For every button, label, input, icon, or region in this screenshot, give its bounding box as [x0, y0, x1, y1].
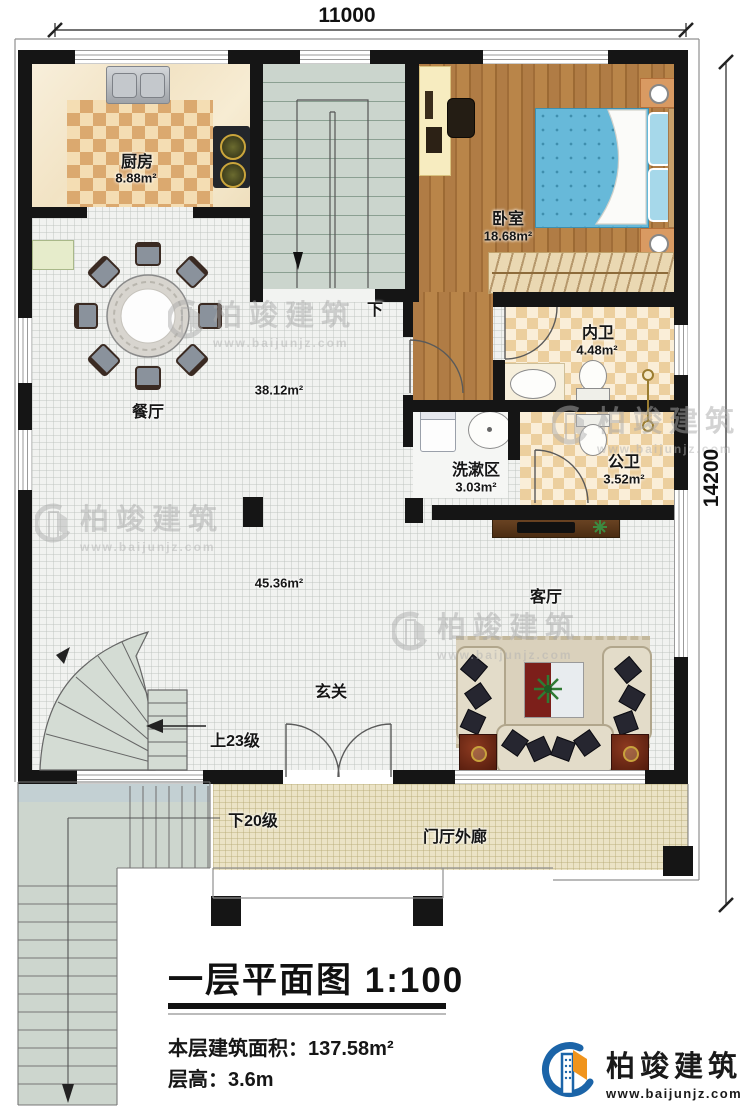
- end-table-lamp: [471, 746, 487, 762]
- desk-chair: [447, 98, 475, 138]
- window: [455, 770, 645, 784]
- title-rule-thin: [168, 1013, 446, 1015]
- sink-basin: [140, 73, 165, 98]
- wall-corridor: [493, 292, 505, 307]
- burner: [220, 134, 246, 160]
- dining-area: 38.12m²: [255, 383, 303, 398]
- wall-segment: [203, 770, 283, 784]
- up-steps-label: 上23级: [210, 727, 260, 751]
- washer-panel: [421, 411, 455, 420]
- brand-name: 柏竣建筑: [606, 1051, 742, 1083]
- floor-area-value: 137.58m²: [308, 1038, 394, 1060]
- wall-living-top: [432, 505, 674, 520]
- wall-segment: [674, 64, 688, 325]
- washing-machine: [420, 410, 456, 452]
- desk-speaker: [425, 91, 433, 119]
- floor-area-row: 本层建筑面积：137.58m²: [168, 1032, 394, 1061]
- wall-kitchen-right: [250, 64, 263, 302]
- end-table: [611, 734, 649, 772]
- wall-corridor-left: [403, 302, 413, 337]
- wall-segment: [18, 770, 77, 784]
- corridor-floor: [413, 292, 493, 400]
- window: [674, 325, 688, 375]
- inner-bath-area: 4.48m²: [576, 343, 617, 358]
- inner-bath-toilet: [576, 360, 608, 400]
- kitchen-label: 厨房: [121, 148, 153, 172]
- wall-segment: [228, 50, 300, 64]
- wall-segment: [18, 64, 32, 318]
- window: [483, 50, 608, 64]
- wall-segment: [393, 770, 455, 784]
- public-bath-label: 公卫: [608, 448, 640, 472]
- stair-down-label: 下: [367, 296, 383, 320]
- down-steps-label: 下20级: [228, 807, 278, 831]
- floor-area-label: 本层建筑面积：: [168, 1038, 308, 1060]
- wall-pier: [405, 498, 423, 523]
- dining-label: 餐厅: [132, 398, 164, 422]
- wardrobe-rail: [492, 272, 668, 274]
- wall-bedroom-bottom: [505, 292, 674, 307]
- wall-kitchen-bottom: [18, 207, 87, 218]
- wash-area-area: 3.03m²: [455, 480, 496, 495]
- wall-segment: [18, 383, 32, 430]
- window: [18, 318, 32, 383]
- column: [243, 497, 263, 527]
- wash-basin: [468, 411, 512, 449]
- dimension-top: 11000: [318, 4, 375, 28]
- wall-corridor: [493, 360, 505, 402]
- wall-bath-middle: [413, 400, 674, 412]
- dimension-right: 14200: [700, 449, 724, 507]
- plan-title: 一层平面图: [168, 961, 353, 1000]
- kitchen-sink: [106, 66, 170, 104]
- window: [18, 430, 32, 490]
- wash-area-label: 洗漱区: [452, 456, 500, 480]
- plan-scale: 1:100: [365, 961, 465, 1000]
- wall-segment: [674, 657, 688, 770]
- bedroom-label: 卧室: [492, 205, 524, 229]
- tv: [517, 522, 575, 533]
- floor-height-row: 层高：3.6m: [168, 1063, 274, 1092]
- wall-segment: [18, 50, 75, 64]
- vanity-counter: [499, 363, 565, 403]
- public-bath-area: 3.52m²: [603, 472, 644, 487]
- end-table-lamp: [623, 746, 639, 762]
- porch-column: [413, 896, 443, 926]
- brand-logo: 柏竣建筑 www.baijunjz.com: [540, 1040, 742, 1106]
- wall-corridor-left: [403, 395, 413, 447]
- window: [674, 490, 688, 657]
- burner: [220, 162, 246, 188]
- brand-logo-icon: [540, 1040, 598, 1106]
- lamp: [649, 84, 669, 104]
- wall-segment: [608, 50, 688, 64]
- wall-segment: [18, 490, 32, 782]
- floor-height-label: 层高：: [168, 1069, 228, 1091]
- ext-stair-landing: [18, 782, 210, 802]
- bedroom-area: 18.68m²: [484, 229, 532, 244]
- public-bath-toilet: [576, 414, 608, 454]
- plan-title-row: 一层平面图 1:100: [168, 952, 464, 1003]
- wall-segment: [370, 50, 483, 64]
- wall-bath-divider: [508, 412, 520, 460]
- wall-segment: [645, 770, 688, 784]
- bed-mattress: [535, 108, 649, 228]
- window: [75, 50, 228, 64]
- wall-kitchen-bottom: [193, 207, 250, 218]
- window: [77, 770, 203, 784]
- living-area: 45.36m²: [255, 576, 303, 591]
- brand-website: www.baijunjz.com: [606, 1086, 742, 1101]
- porch-label: 门厅外廊: [423, 823, 487, 847]
- ext-stair-lower: [18, 868, 117, 1105]
- basin-drain: [487, 427, 492, 432]
- living-label: 客厅: [530, 583, 562, 607]
- end-table: [459, 734, 497, 772]
- window: [300, 50, 370, 64]
- toilet-bowl: [579, 424, 607, 456]
- tv-cabinet: [492, 518, 620, 538]
- stove: [213, 126, 250, 188]
- desk-monitor: [426, 127, 442, 153]
- wardrobe: [488, 252, 676, 294]
- foyer-label: 玄关: [315, 678, 347, 702]
- wall-stair-right: [405, 64, 419, 302]
- window-seat-cabinet: [32, 240, 74, 270]
- stair-floor: [263, 64, 405, 289]
- inner-bath-label: 内卫: [582, 319, 614, 343]
- kitchen-area: 8.88m²: [115, 171, 156, 186]
- title-rule-thick: [168, 1003, 446, 1009]
- floor-height-value: 3.6m: [228, 1069, 274, 1091]
- wall-segment: [674, 375, 688, 490]
- coffee-table: [524, 662, 584, 718]
- porch-column: [211, 896, 241, 926]
- sink-basin: [112, 73, 137, 98]
- floor-plan-canvas: 柏竣建筑 www.baijunjz.com 柏竣建筑 www.baijunjz.…: [0, 0, 750, 1119]
- nightstand: [640, 78, 676, 108]
- porch-column: [663, 846, 693, 876]
- lamp: [649, 234, 669, 254]
- basin: [510, 369, 556, 399]
